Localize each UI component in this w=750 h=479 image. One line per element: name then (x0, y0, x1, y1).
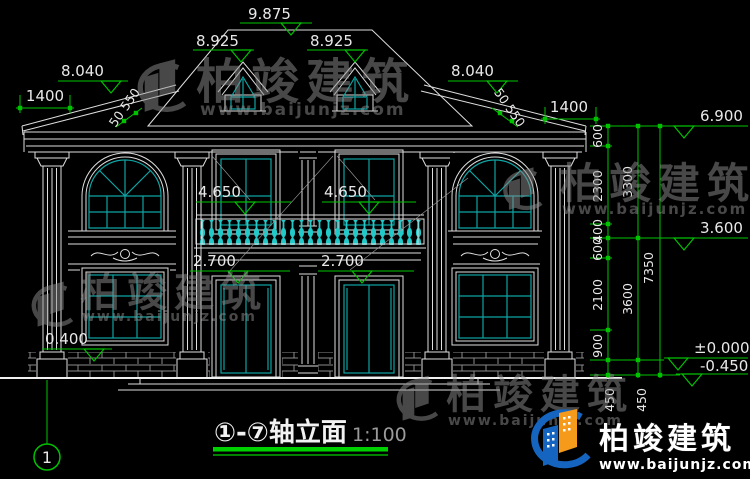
ornament-left (91, 250, 159, 262)
elevation-value: 2.700 (193, 252, 236, 270)
entry-steps (118, 378, 500, 390)
title-underline-thick (213, 447, 388, 452)
cad-elevation-drawing: 9.875 8.925 8.925 8.040 8.040 50 5 (0, 0, 750, 479)
elevation-marker-wing-right: 8.040 (448, 62, 518, 93)
elevation-marker-grade: -0.450 (676, 357, 748, 386)
watermark-left: 柏竣建筑 www.baijunjz.com (34, 270, 268, 327)
footer-logo-site: www.baijunjz.com (599, 457, 750, 473)
watermark-brand: 柏竣建筑 (446, 372, 634, 418)
dim-value: 3600 (620, 283, 635, 315)
title-block: ①-⑦轴立面 1:100 (213, 417, 407, 455)
elevation-value: 8.040 (61, 62, 104, 80)
elevation-value: 2.700 (321, 252, 364, 270)
elevation-marker-sill2-left: 4.650 (196, 183, 292, 214)
logo-tower-orange (559, 409, 577, 453)
watermark-right: 柏竣建筑 www.baijunjz.com (505, 159, 750, 218)
elevation-value: 6.900 (700, 107, 743, 125)
elevation-value: 3.600 (700, 219, 743, 237)
floor-band-right-flank (450, 231, 540, 270)
dim-value: 1400 (26, 87, 64, 105)
pilaster-lower-center (298, 264, 318, 377)
axis-number: 1 (42, 448, 52, 467)
elevation-value: -0.450 (700, 357, 748, 375)
dim-value: 2100 (590, 279, 605, 311)
dim-eave-detail-right: 50 550 (491, 85, 528, 129)
window-lower-right (450, 268, 540, 345)
elevation-value: 4.650 (324, 183, 367, 201)
watermark-logo-icon (140, 59, 184, 111)
elevation-marker-floor2: 3.600 (668, 219, 748, 250)
elevation-value: ±0.000 (694, 339, 750, 357)
eave-entablature (24, 132, 586, 152)
floor-band-left-flank (66, 231, 182, 270)
footer-logo-brand: 柏竣建筑 (599, 422, 735, 457)
dim-value: 600 (590, 237, 605, 261)
elevation-marker-wing-left: 8.040 (58, 62, 128, 93)
dim-value: 900 (590, 334, 605, 358)
watermark-site: www.baijunjz.com (200, 100, 406, 120)
drawing-title: ①-⑦轴立面 (214, 417, 347, 448)
watermark-bottom: 柏竣建筑 www.baijunjz.com (399, 372, 634, 429)
dim-overhang-right: 1400 (541, 98, 600, 124)
elevation-value: 8.925 (310, 32, 353, 50)
drawing-scale: 1:100 (352, 424, 407, 446)
dim-value: 7350 (641, 252, 656, 284)
arched-window-left (78, 153, 172, 231)
elevation-marker-eave: 6.900 (668, 107, 748, 138)
dim-value: 50 550 (491, 85, 528, 129)
watermark-logo-icon (399, 376, 437, 421)
column-inner-right (420, 152, 454, 378)
drawing-canvas: 9.875 8.925 8.925 8.040 8.040 50 5 (0, 0, 750, 479)
logo-tower-blue (543, 425, 558, 466)
ornament-right (461, 250, 529, 262)
elevation-value: 8.925 (196, 32, 239, 50)
door-right (333, 276, 405, 377)
elevation-value: 4.650 (198, 183, 241, 201)
elevation-value: 0.400 (45, 330, 88, 348)
watermark-top: 柏竣建筑 www.baijunjz.com (140, 54, 416, 120)
watermark-site: www.baijunjz.com (562, 200, 747, 218)
footer-logo: 柏竣建筑 www.baijunjz.com (535, 409, 750, 473)
dim-value: 450 (634, 388, 649, 412)
dim-value: 600 (590, 124, 605, 148)
elevation-value: 8.040 (451, 62, 494, 80)
axis-grid-1: 1 (34, 380, 60, 470)
dim-overhang-left: 1400 (16, 87, 74, 113)
elevation-value: 9.875 (248, 5, 291, 23)
dim-value: 1400 (550, 98, 588, 116)
watermark-site: www.baijunjz.com (82, 309, 257, 325)
